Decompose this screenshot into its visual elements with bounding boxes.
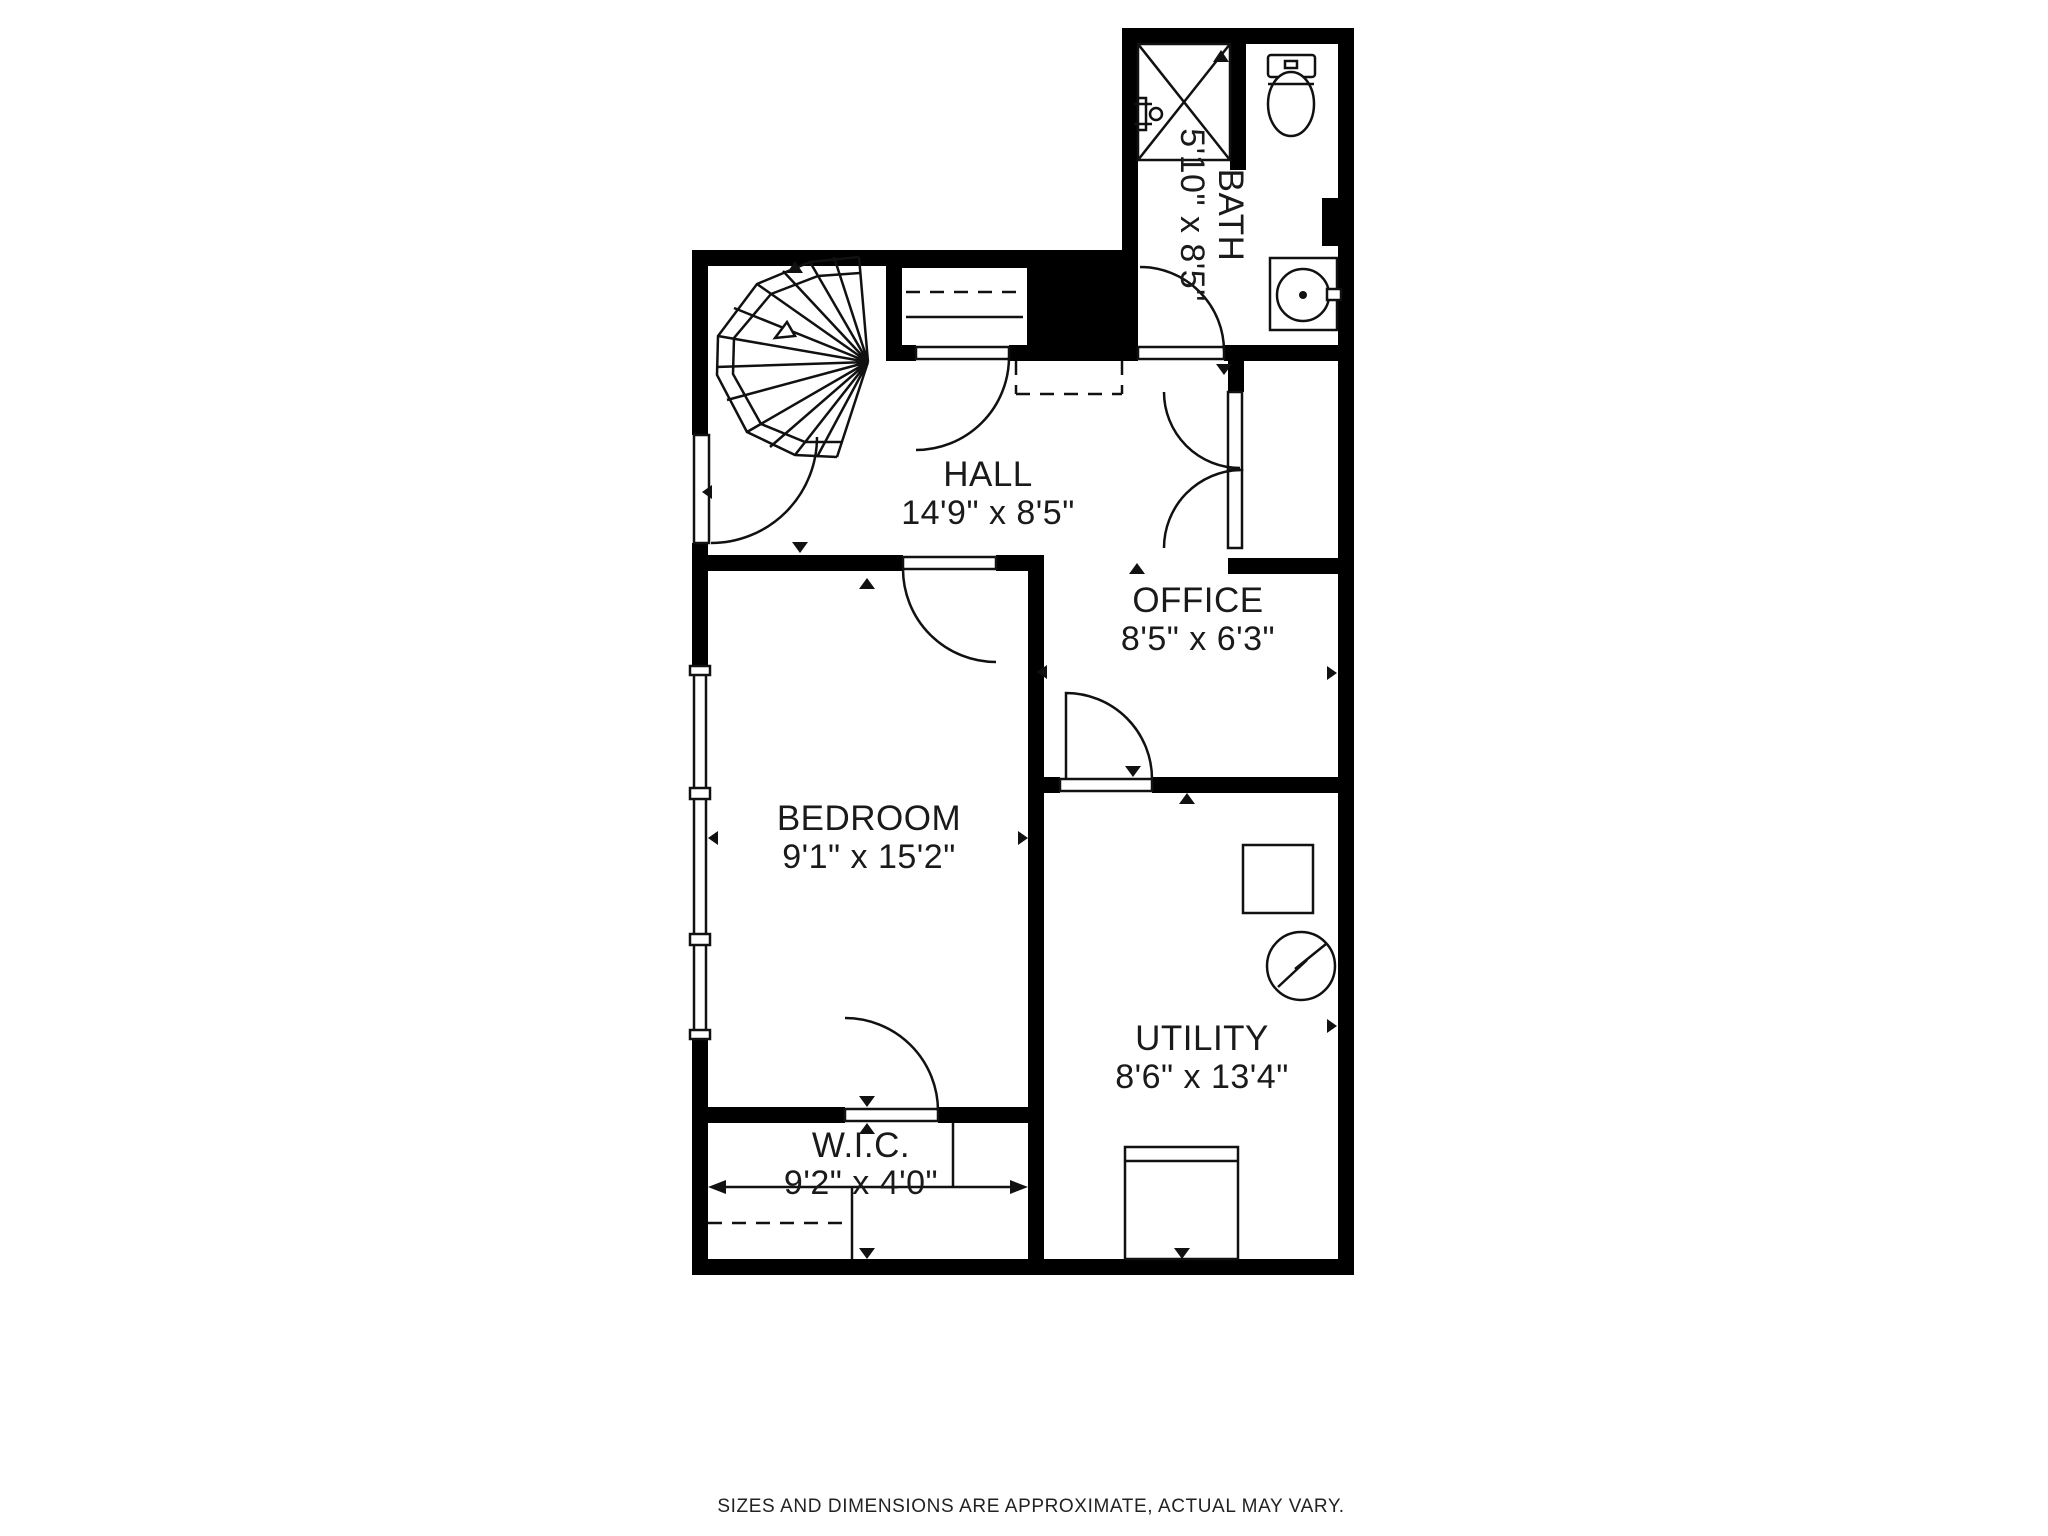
disclaimer-text: SIZES AND DIMENSIONS ARE APPROXIMATE, AC… [717,1496,1344,1517]
electric-heater-icon [1267,932,1335,1000]
doors [694,267,1242,1121]
sink-vanity-icon [1270,258,1341,330]
svg-text:5'10" x 8'5": 5'10" x 8'5" [1173,128,1211,302]
svg-text:BATH: BATH [1211,169,1250,262]
svg-text:9'2" x 4'0": 9'2" x 4'0" [784,1164,938,1202]
toilet-icon [1268,55,1315,136]
floor-plan-page: HALL 14'9" x 8'5" BATH 5'10" x 8'5" OFFI… [0,0,2048,1536]
bath-door-leaf [1138,347,1224,359]
spiral-staircase-icon [716,257,868,457]
svg-text:14'9" x 8'5": 14'9" x 8'5" [901,494,1075,532]
svg-text:8'5" x 6'3": 8'5" x 6'3" [1121,620,1275,658]
floor-plan-svg: HALL 14'9" x 8'5" BATH 5'10" x 8'5" OFFI… [0,0,2048,1536]
closet-double-door-leaf-top [1228,392,1242,470]
utility-door-leaf [1060,779,1152,791]
svg-text:UTILITY: UTILITY [1135,1019,1269,1058]
svg-text:OFFICE: OFFICE [1132,581,1263,620]
room-label-utility: UTILITY 8'6" x 13'4" [1115,1019,1289,1096]
svg-text:BEDROOM: BEDROOM [777,799,961,838]
svg-text:W.I.C.: W.I.C. [812,1126,910,1165]
room-label-wic: W.I.C. 9'2" x 4'0" [784,1126,938,1202]
svg-text:8'6" x 13'4": 8'6" x 13'4" [1115,1058,1289,1096]
wall-openings [692,268,1224,1123]
room-label-office: OFFICE 8'5" x 6'3" [1121,581,1275,658]
bedroom-door-leaf [903,557,996,569]
svg-text:HALL: HALL [943,455,1033,494]
svg-text:9'1" x 15'2": 9'1" x 15'2" [782,838,956,876]
wic-door-leaf [845,1109,938,1121]
washer-icon [1125,1147,1238,1259]
closet-double-door-leaf-bottom [1228,470,1242,548]
room-label-hall: HALL 14'9" x 8'5" [901,455,1075,532]
hall-closet-door-leaf [916,347,1009,359]
utility-appliance-square-icon [1243,845,1313,913]
room-label-bedroom: BEDROOM 9'1" x 15'2" [777,799,961,876]
